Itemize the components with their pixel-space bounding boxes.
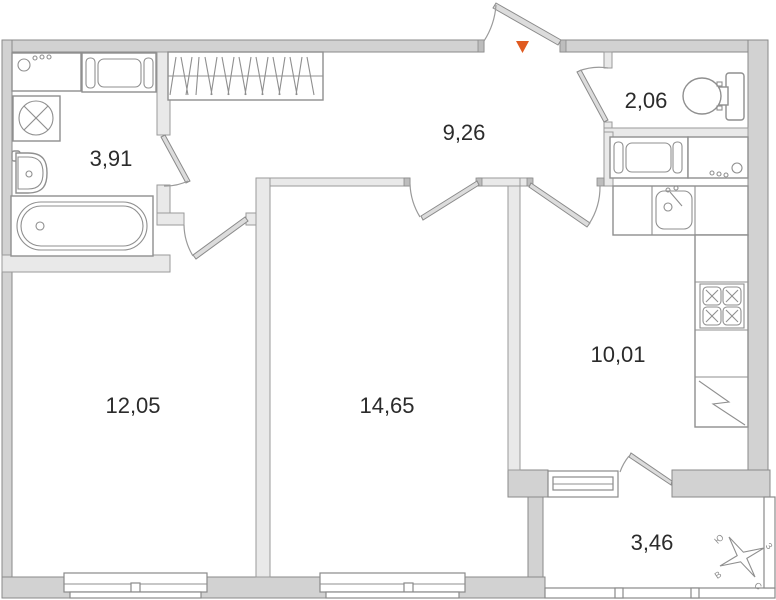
- room-area-label-wc: 2,06: [625, 88, 668, 113]
- jamb-bedroom-left: [404, 178, 410, 186]
- wall-kitchen-left: [508, 186, 520, 470]
- wall-bathroom-right-bottom: [157, 185, 170, 213]
- wall-left: [2, 40, 12, 598]
- entrance-marker-icon: [516, 41, 529, 53]
- wall-top-right: [560, 40, 768, 52]
- wall-bedroom-top-left: [270, 178, 410, 186]
- washing-machine-symbol: [12, 53, 81, 91]
- room-area-label-kitchen: 10,01: [590, 342, 645, 367]
- jamb-entrance-left: [478, 40, 484, 52]
- kitchen-balcony-window: [548, 471, 618, 497]
- jamb-entrance-right: [560, 40, 566, 52]
- wall-hall-living: [157, 213, 184, 225]
- wall-bedroom-top-right: [478, 178, 520, 186]
- wall-bedroom-left: [256, 178, 270, 577]
- room-area-label-hallway: 9,26: [443, 120, 486, 145]
- kitchen-counter-top: [613, 186, 748, 235]
- kitchen-counter-dots-symbol: [688, 137, 748, 178]
- room-area-label-bathroom: 3,91: [90, 146, 133, 171]
- wall-top-left: [2, 40, 484, 52]
- entrance-door: [484, 3, 561, 45]
- living-room-door: [184, 217, 248, 259]
- wall-wc-bottom: [604, 128, 748, 137]
- wall-right: [748, 40, 768, 497]
- kitchen-counter-column: [695, 235, 748, 427]
- living-room-window: [64, 573, 207, 598]
- jamb-kitchen-right: [597, 178, 604, 186]
- wall-balcony-top-right: [672, 470, 770, 497]
- washer-cross-symbol: [13, 96, 60, 141]
- wall-bathroom-bottom: [2, 255, 170, 272]
- room-area-label-balcony: 3,46: [631, 530, 674, 555]
- laundry-appliance-symbol: [82, 53, 156, 92]
- room-living: [12, 272, 256, 577]
- room-area-label-living: 12,05: [105, 393, 160, 418]
- room-area-label-bedroom: 14,65: [359, 393, 414, 418]
- floor-plan-svg: Ю З В С 3,91 9,26 2,06 12,05 14,65 10,01…: [0, 0, 776, 600]
- floor-plan: Ю З В С 3,91 9,26 2,06 12,05 14,65 10,01…: [0, 0, 776, 600]
- bedroom-window: [320, 573, 465, 598]
- wall-balcony-left: [528, 497, 543, 577]
- wall-living-door-jamb: [246, 213, 256, 225]
- wardrobe-symbol: [168, 52, 323, 100]
- balcony-glazing-bottom: [545, 588, 775, 598]
- wash-basin-symbol: [12, 151, 47, 193]
- bathtub-symbol: [11, 196, 153, 256]
- wall-balcony-top-left: [508, 470, 548, 497]
- kitchen-washing-machine-symbol: [610, 137, 688, 178]
- room-bedroom: [270, 186, 508, 577]
- wall-wc-left-top: [604, 52, 612, 68]
